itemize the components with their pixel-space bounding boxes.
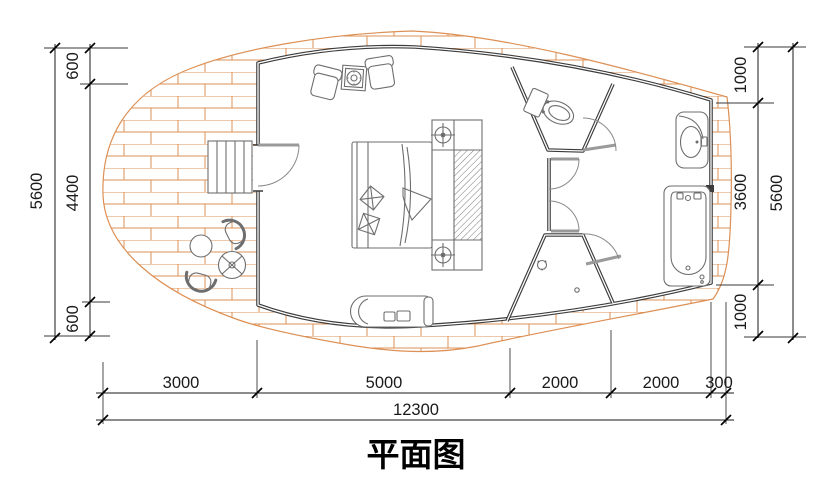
entry-door [258,145,299,186]
dim-bottom-seg-2: 2000 [542,374,579,392]
dim-bottom-seg-1: 5000 [366,374,403,392]
dim-bottom-seg-3: 2000 [643,374,680,392]
sink-vanity [676,112,708,168]
dim-right-seg-2: 1000 [732,294,750,331]
wc-door [583,118,616,151]
armchair-right [365,55,398,90]
deck-round-table [190,235,212,257]
drawing-title: 平面图 [367,436,466,473]
dim-right-seg-1: 3600 [732,174,750,211]
dim-bottom-seg-4: 300 [705,374,733,392]
dim-left-seg-1: 4400 [64,175,82,212]
wardrobe-unit [431,120,482,270]
ceiling-lamp-icon [431,243,455,267]
vestibule-door-lower [549,201,579,231]
bed [352,142,432,248]
side-table [341,65,367,91]
floor-plan-canvas: 5600 600 4400 600 1000 3600 1000 5600 30… [0,0,837,496]
dim-bottom-total: 12300 [393,401,439,419]
dim-left-seg-2: 600 [64,305,82,333]
dim-bottom-seg-0: 3000 [163,374,200,392]
chaise-lounge [350,296,433,327]
floor-drain-icon [575,288,579,292]
doors [258,118,621,264]
entry-door-opening [253,145,263,191]
floor-plan-sheet: 5600 600 4400 600 1000 3600 1000 5600 30… [0,0,837,496]
bathtub [664,186,710,286]
deck-stairs [208,141,252,193]
vestibule-door-upper [549,159,579,189]
dim-right-seg-0: 1000 [732,57,750,94]
dim-right-total: 5600 [768,175,786,212]
dim-left-total: 5600 [28,173,46,210]
shower-head-icon [538,261,547,271]
dim-left-seg-0: 600 [64,52,82,80]
armchair-left [308,64,343,101]
parasol-icon [219,252,246,279]
ceiling-lamp-icon [431,123,455,147]
pillow [360,186,384,210]
wardrobe-hanging-hatch [454,150,482,240]
toilet [523,88,578,131]
pillow [358,213,379,234]
